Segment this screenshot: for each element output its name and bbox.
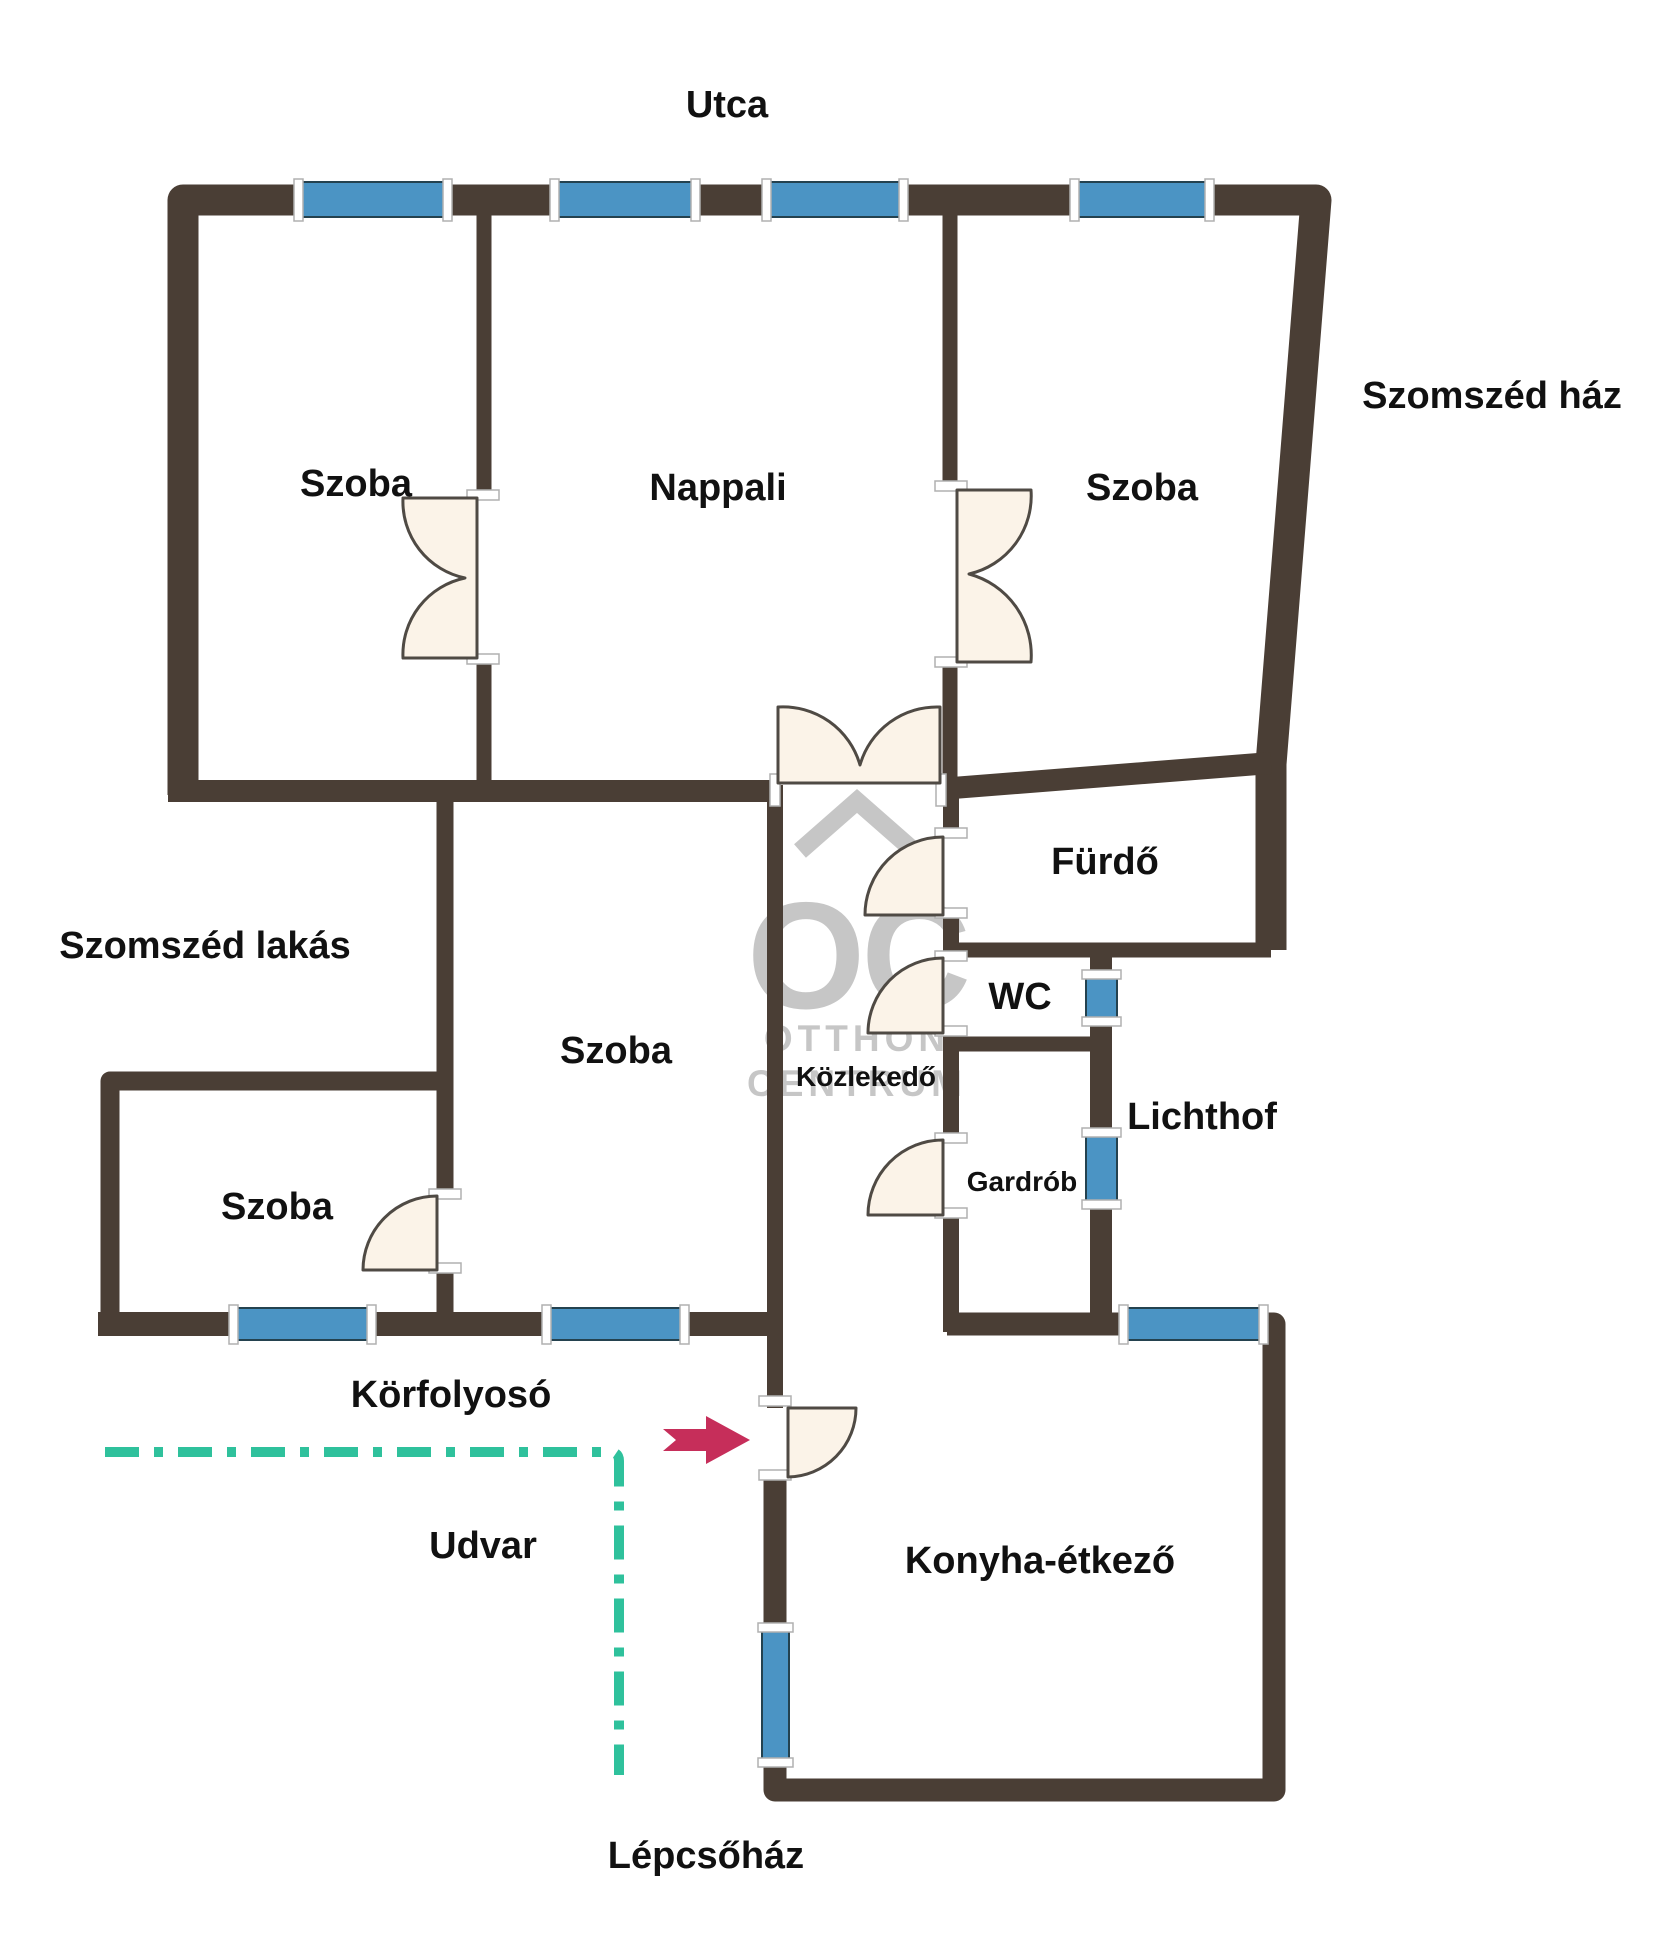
double-door-living-room2 (957, 490, 1031, 662)
window-small-room-corridor (235, 1308, 370, 1340)
window-kitchen-left (762, 1628, 789, 1762)
label-wardrobe: Gardrób (967, 1166, 1077, 1197)
window-room2-street (1076, 182, 1208, 217)
floor-plan: OC OTTHON CENTRUM (0, 0, 1660, 1940)
double-door-living-hallway (778, 707, 940, 783)
window-middle-room-corridor (548, 1308, 683, 1340)
courtyard-boundary-line (105, 1452, 619, 1775)
window-living-street-2 (768, 182, 902, 217)
door-wardrobe (868, 1140, 943, 1215)
label-room-middle: Szoba (560, 1030, 673, 1072)
label-courtyard: Udvar (429, 1525, 537, 1567)
house-chevron-icon (800, 801, 914, 851)
window-wardrobe-lightwell (1086, 1133, 1117, 1204)
double-door-room1-living (403, 498, 477, 658)
label-street: Utca (686, 84, 769, 126)
label-outdoor-corridor: Körfolyosó (351, 1374, 552, 1416)
window-living-street-1 (556, 182, 694, 217)
entrance-arrow-icon (663, 1416, 750, 1464)
label-room-top-right: Szoba (1086, 467, 1199, 509)
wall-outer-left-top-right (183, 200, 1316, 950)
label-living-room: Nappali (649, 467, 786, 509)
door-bathroom (865, 837, 943, 915)
wall-bathroom-top-slant (940, 763, 1271, 789)
label-stairwell: Lépcsőház (608, 1835, 804, 1877)
label-room-top-left: Szoba (300, 463, 413, 505)
label-room-small: Szoba (221, 1186, 334, 1228)
label-kitchen-dining: Konyha-étkező (905, 1540, 1175, 1582)
window-room1-street (300, 182, 446, 217)
label-toilet: WC (988, 976, 1051, 1018)
label-hallway: Közlekedő (796, 1061, 936, 1092)
window-toilet-lightwell (1086, 975, 1117, 1021)
label-bathroom: Fürdő (1051, 841, 1159, 883)
window-kitchen-lightwell (1125, 1308, 1262, 1340)
door-small-room (363, 1196, 437, 1270)
door-entrance (788, 1408, 856, 1477)
label-neighbor-house: Szomszéd ház (1362, 375, 1622, 417)
label-neighbor-flat: Szomszéd lakás (59, 925, 350, 967)
label-lightwell: Lichthof (1127, 1096, 1277, 1138)
